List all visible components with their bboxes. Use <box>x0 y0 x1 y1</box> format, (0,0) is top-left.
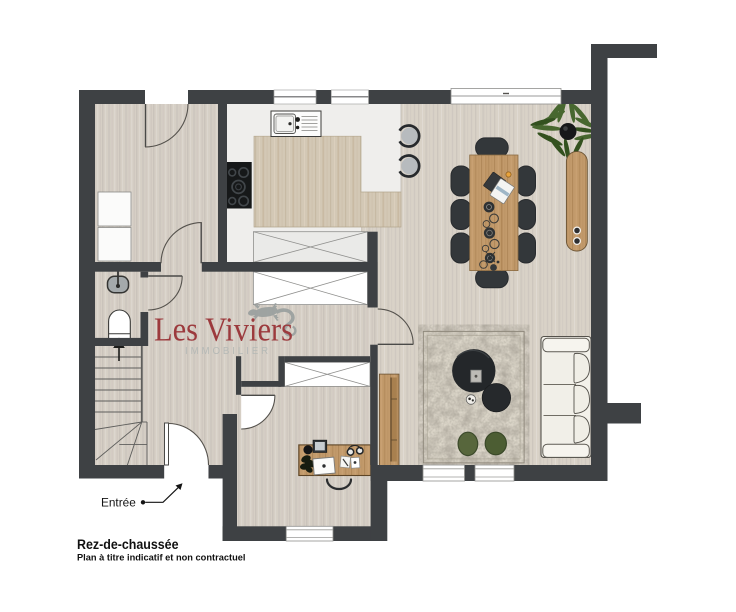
svg-text:Entrée: Entrée <box>101 496 136 510</box>
svg-text:IMMOBILIER: IMMOBILIER <box>185 346 271 357</box>
svg-text:Les Viviers: Les Viviers <box>154 312 293 349</box>
svg-text:Plan à titre indicatif et non: Plan à titre indicatif et non contractue… <box>77 552 246 563</box>
